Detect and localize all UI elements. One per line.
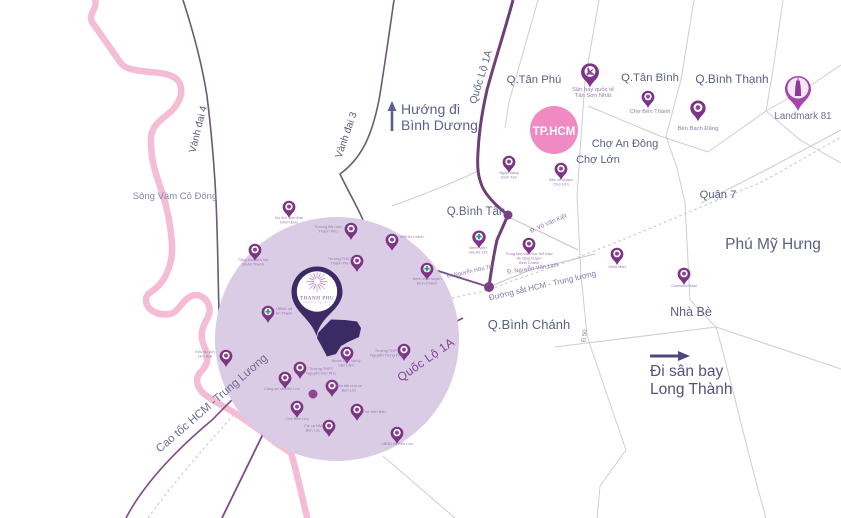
svg-text:TP.HCM: TP.HCM — [533, 126, 576, 138]
svg-text:Quận 7: Quận 7 — [700, 189, 737, 201]
svg-text:Trường THPTNguyễn Trung Trực: Trường THPTNguyễn Trung Trực — [370, 348, 404, 358]
svg-text:Q.Bình Chánh: Q.Bình Chánh — [488, 317, 570, 332]
svg-text:Q.Tân Phú: Q.Tân Phú — [507, 74, 562, 86]
svg-text:UBND xã Bến Lức: UBND xã Bến Lức — [381, 441, 413, 446]
svg-text:Cty cp NMBến Lức: Cty cp NMBến Lức — [304, 423, 322, 433]
svg-text:Chợ Lớn: Chợ Lớn — [576, 154, 620, 166]
svg-text:Long Thành: Long Thành — [650, 381, 732, 398]
svg-text:KHU DO THI MOI: KHU DO THI MOI — [303, 302, 330, 304]
svg-text:Q.Bình Tân: Q.Bình Tân — [447, 206, 506, 218]
svg-text:Q.Tân Bình: Q.Tân Bình — [621, 72, 679, 84]
svg-text:THANH PHU: THANH PHU — [300, 296, 334, 302]
svg-text:Sân bay quốc tếTân Sơn Nhất: Sân bay quốc tếTân Sơn Nhất — [572, 87, 615, 99]
svg-text:Nhà Bè: Nhà Bè — [670, 305, 712, 319]
svg-text:Chợ An Đông: Chợ An Đông — [592, 138, 659, 150]
svg-text:Bến Bạch Đằng: Bến Bạch Đằng — [678, 125, 719, 132]
svg-text:Phú Mỹ Hưng: Phú Mỹ Hưng — [725, 236, 821, 253]
svg-text:Công an xã Bến Lức: Công an xã Bến Lức — [264, 386, 300, 391]
svg-text:Biệt thự xanh: Biệt thự xanh — [400, 234, 423, 239]
svg-text:Thư viện Bến: Thư viện Bến — [362, 409, 385, 414]
svg-text:Ngân hàngBình Tân: Ngân hàngBình Tân — [499, 170, 518, 180]
svg-text:Đi sân bay: Đi sân bay — [650, 363, 723, 380]
svg-text:Landmark 81: Landmark 81 — [774, 111, 831, 122]
svg-text:Sella Mart: Sella Mart — [608, 264, 626, 269]
svg-text:Bình Dương: Bình Dương — [401, 117, 478, 133]
svg-text:Bệnh viện huyệnBình Chánh: Bệnh viện huyệnBình Chánh — [413, 276, 442, 286]
svg-text:Khu du lịchsinh thái: Khu du lịchsinh thái — [195, 349, 214, 359]
svg-text:Chợ Bến Lức: Chợ Bến Lức — [285, 416, 308, 421]
svg-text:Trường THPTNguyễn Văn Phú: Trường THPTNguyễn Văn Phú — [306, 366, 335, 376]
svg-text:Hướng đi: Hướng đi — [401, 101, 460, 117]
svg-text:Chợ Bến Thành: Chợ Bến Thành — [629, 109, 670, 115]
svg-text:Sông Vàm Cỏ Đông: Sông Vàm Cỏ Đông — [133, 191, 218, 202]
svg-text:Q.Bình Thạnh: Q.Bình Thạnh — [695, 72, 768, 86]
svg-text:Bệnh việnGia An 115: Bệnh việnGia An 115 — [469, 245, 488, 255]
svg-text:Trường THCSThanh Phú: Trường THCSThanh Phú — [328, 256, 353, 266]
svg-text:UBND xãAn Thạnh: UBND xãAn Thạnh — [276, 306, 293, 316]
svg-text:Cineworld Mall: Cineworld Mall — [671, 283, 697, 288]
